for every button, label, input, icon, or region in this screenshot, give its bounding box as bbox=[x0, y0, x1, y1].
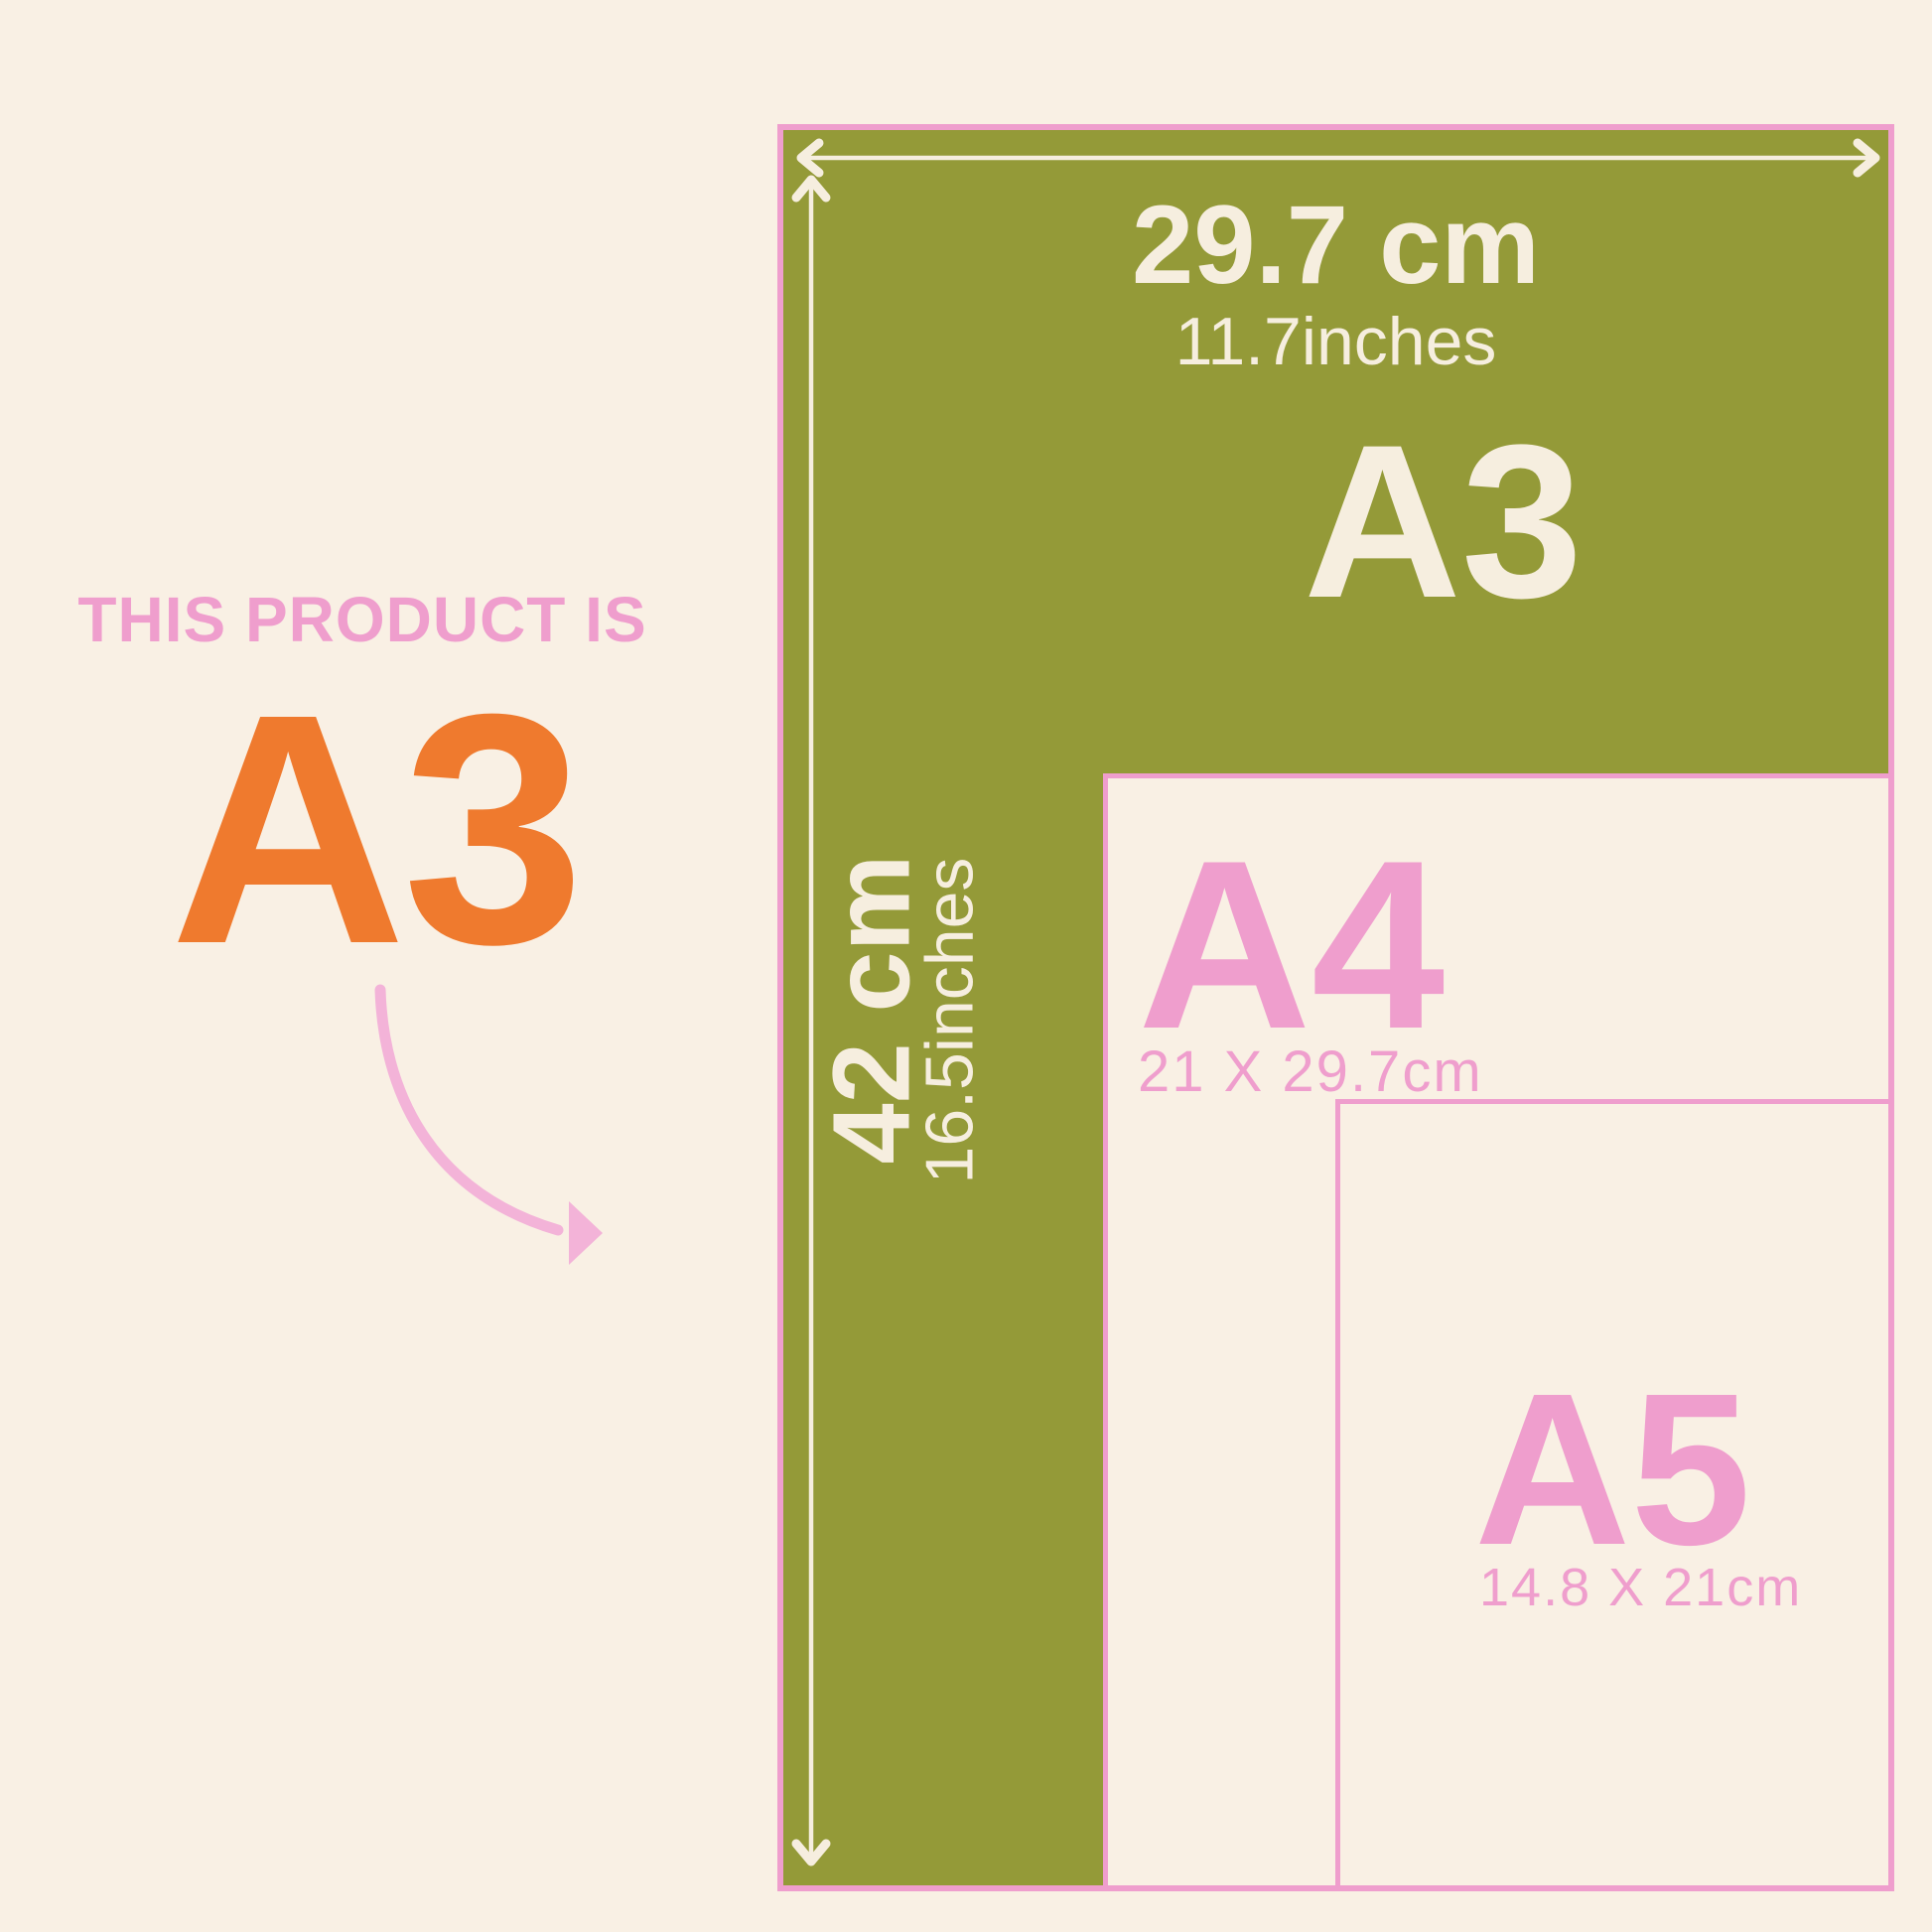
a5-dimensions-label: 14.8 X 21cm bbox=[1479, 1561, 1802, 1614]
a3-size-label: A3 bbox=[1304, 412, 1583, 630]
a5-size-label: A5 bbox=[1474, 1362, 1751, 1579]
a4-dimensions-label: 21 X 29.7cm bbox=[1138, 1043, 1483, 1101]
product-size-label: A3 bbox=[60, 665, 691, 993]
a3-height-inches-label: 16.5inches bbox=[916, 874, 984, 1184]
a3-width-inches-label: 11.7inches bbox=[783, 308, 1888, 375]
product-eyebrow-text: THIS PRODUCT IS bbox=[58, 588, 667, 651]
a4-size-label: A4 bbox=[1138, 825, 1445, 1065]
a3-width-cm-label: 29.7 cm bbox=[783, 190, 1888, 301]
infographic-canvas: THIS PRODUCT IS A3 29.7 cm 11.7inches A3… bbox=[0, 0, 1932, 1932]
a3-height-cm-label: 42 cm bbox=[818, 864, 927, 1165]
